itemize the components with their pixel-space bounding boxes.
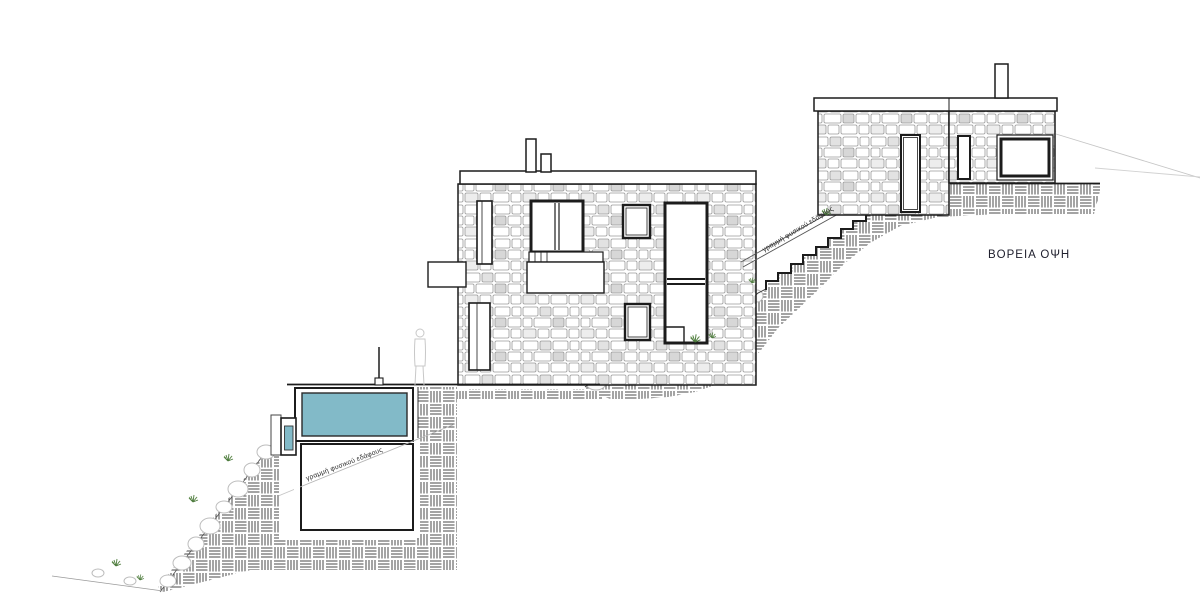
- wall-box-left: [428, 262, 466, 287]
- upper-house-window-narrow: [958, 136, 970, 179]
- window-narrow-lower-left: [469, 303, 490, 370]
- main-house-chimney-2: [541, 154, 551, 172]
- shower-base: [375, 378, 383, 385]
- overflow-basin-water: [285, 426, 294, 450]
- terrain-strip-under-house: [457, 389, 602, 399]
- elevation-svg: ΒΟΡΕΙΑ ΟΨΗ γραμμή φυσικού εδάφους γραμμή…: [0, 0, 1200, 600]
- upper-house-chimney: [995, 64, 1008, 98]
- main-house-parapet: [460, 171, 756, 184]
- terrain-pool-right-column: [418, 387, 457, 543]
- upper-house-wall-left: [818, 111, 949, 215]
- north-elevation-drawing: ΒΟΡΕΙΑ ΟΨΗ γραμμή φυσικού εδάφους γραμμή…: [0, 0, 1200, 600]
- overflow-channel-outer: [271, 415, 281, 455]
- window-narrow-upper-left: [477, 201, 492, 264]
- human-figure: [415, 329, 426, 385]
- balcony-rail: [529, 252, 603, 262]
- main-house: [287, 139, 756, 385]
- window-double: [531, 201, 583, 252]
- upper-house-parapet: [814, 98, 1057, 111]
- pool-water: [302, 393, 407, 436]
- main-house-stone-wall: [458, 184, 756, 385]
- drawing-title: ΒΟΡΕΙΑ ΟΨΗ: [988, 249, 1070, 261]
- main-house-chimney-1: [526, 139, 536, 172]
- door-window-tall: [665, 203, 707, 343]
- balcony-planter: [527, 262, 604, 293]
